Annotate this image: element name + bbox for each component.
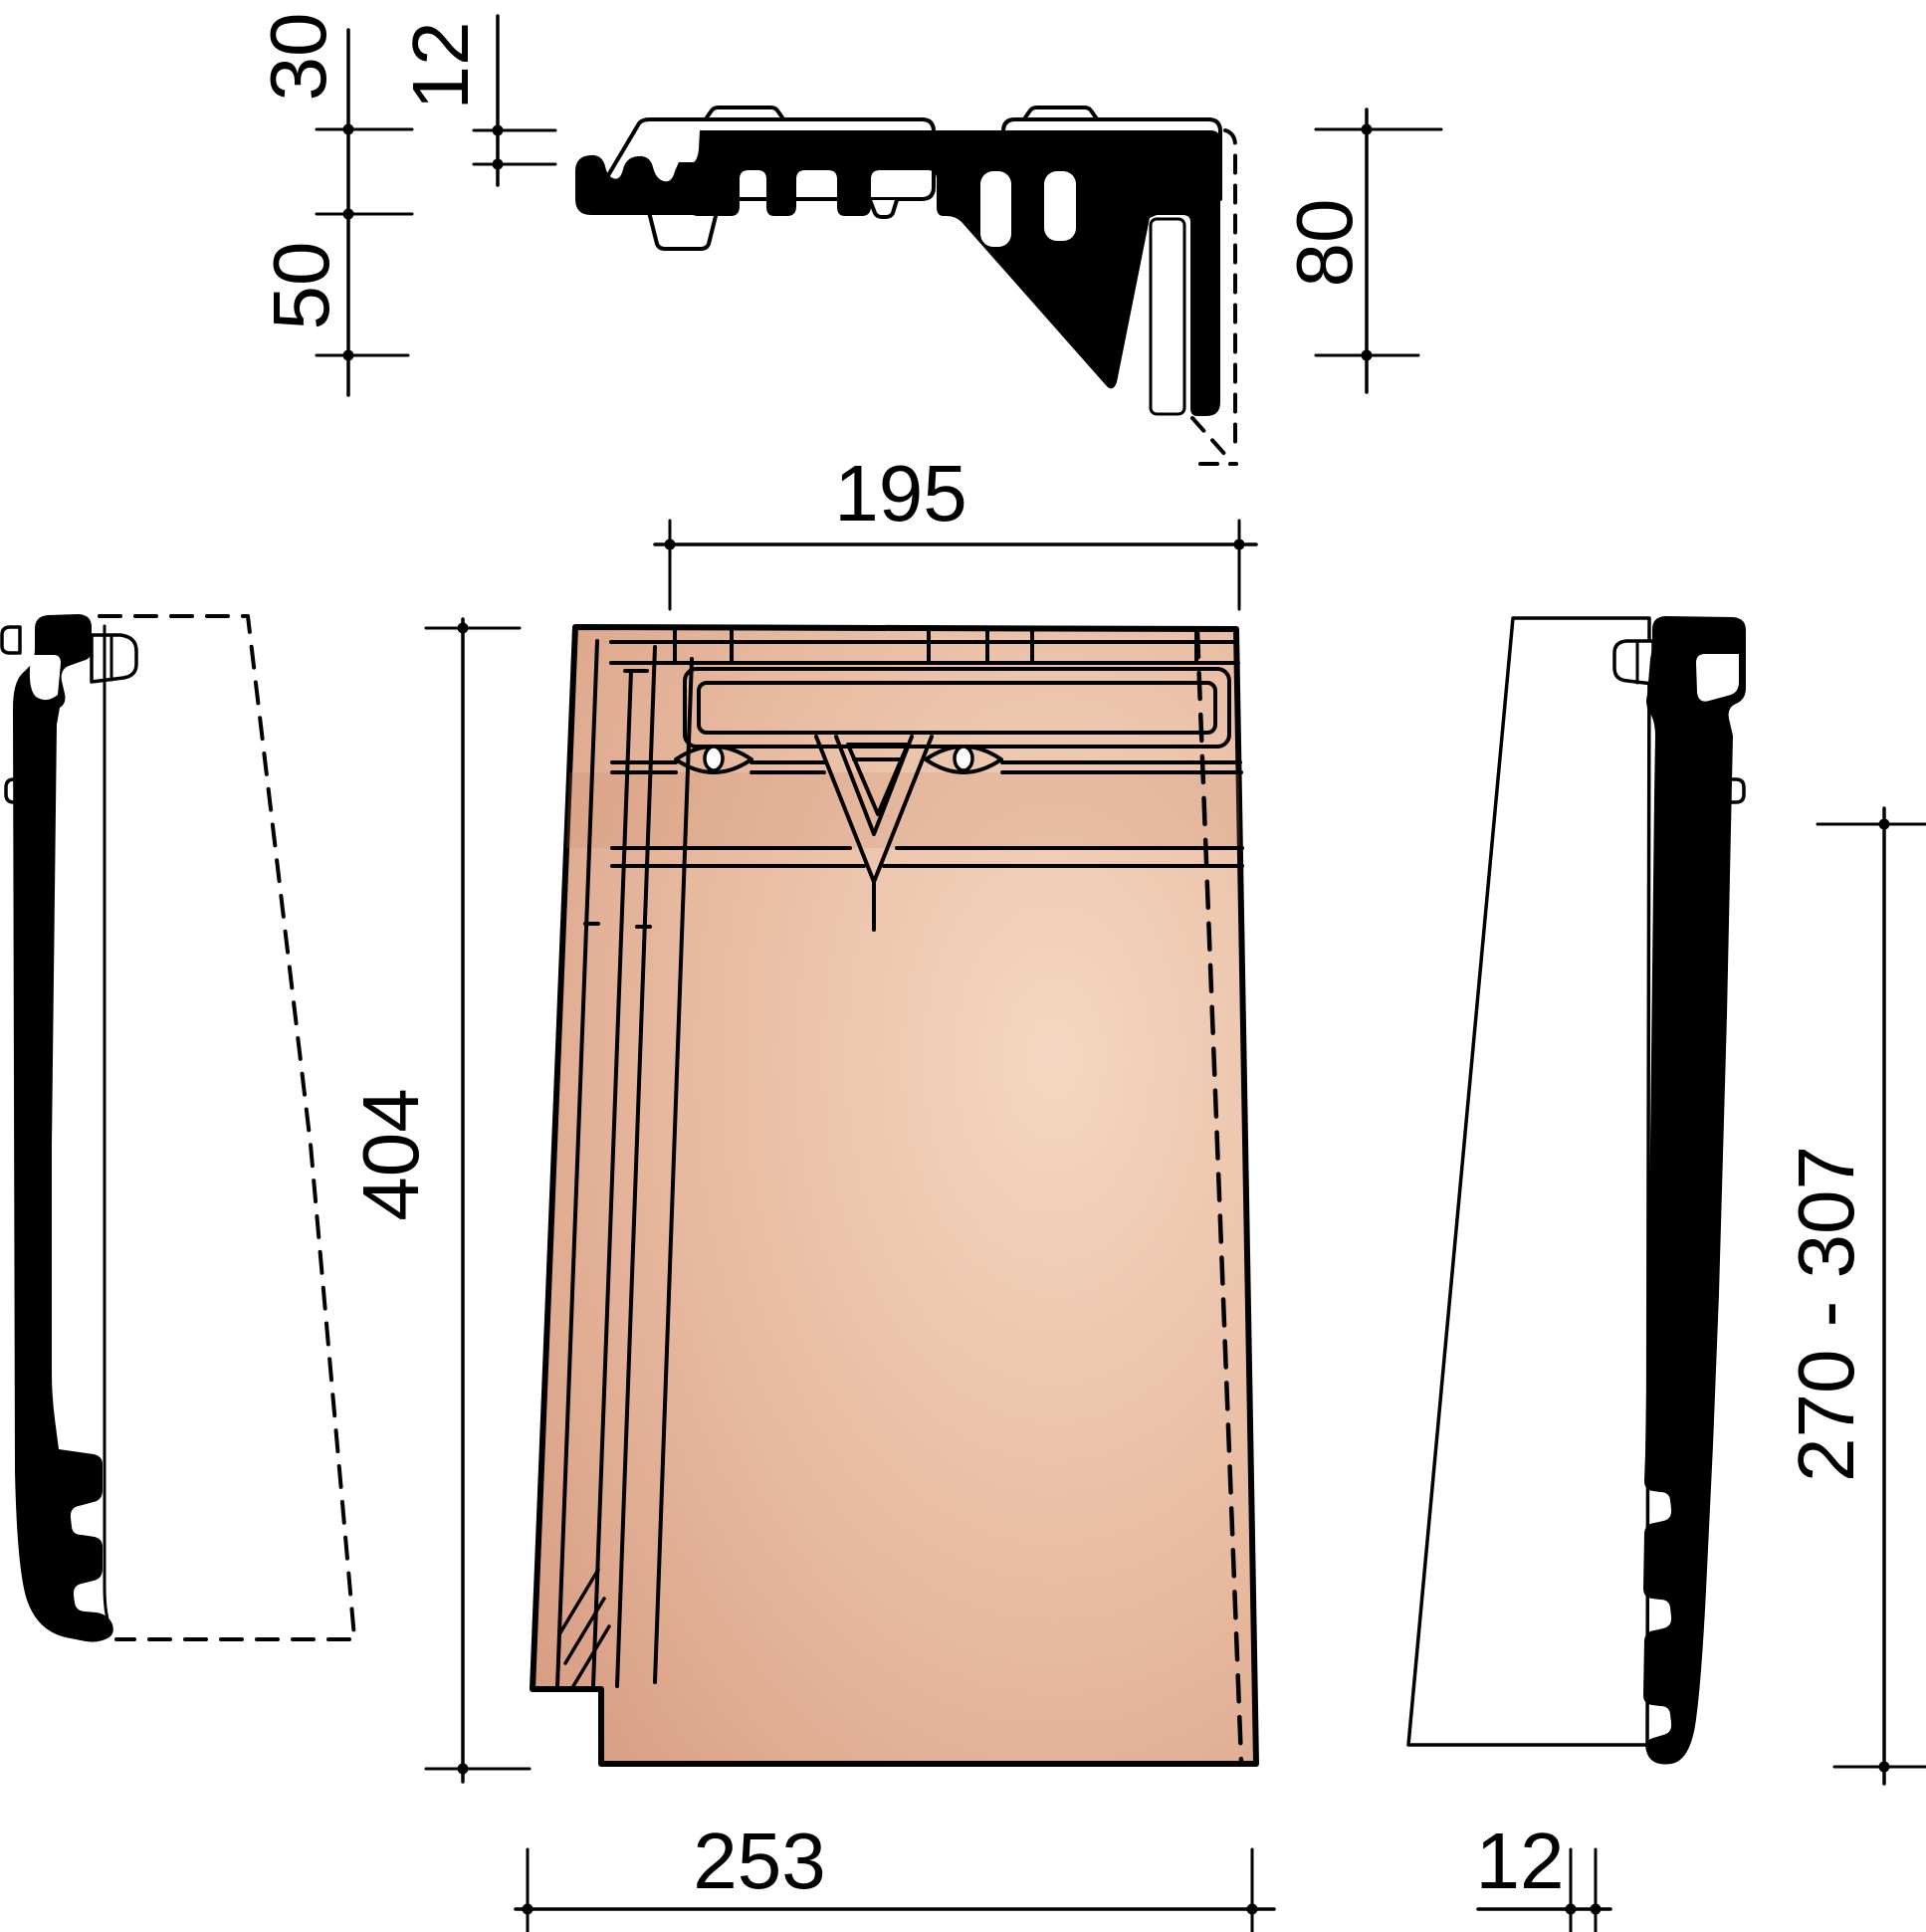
dim-dot xyxy=(1879,819,1890,830)
technical-drawing-page: 30 50 12 80 195 xyxy=(0,0,1926,1932)
dim-195: 195 xyxy=(655,449,1256,609)
dim-dot xyxy=(343,350,354,361)
plan-view xyxy=(533,627,1256,1764)
section-leg-flange-outline xyxy=(1151,219,1184,414)
dim-dot xyxy=(1234,539,1245,550)
dim-dot xyxy=(343,209,354,220)
dim-12-section: 12 xyxy=(396,16,555,185)
dim-label-50: 50 xyxy=(257,242,345,330)
left-side-tab-top-right xyxy=(92,635,136,682)
left-side-black-profile xyxy=(13,614,113,1642)
dim-404-ticks xyxy=(426,628,530,1769)
dim-dot xyxy=(1879,1762,1890,1773)
right-side-tab-left xyxy=(1614,641,1653,684)
left-side-view xyxy=(2,614,354,1642)
dim-label-195: 195 xyxy=(834,449,966,537)
dim-12-ticks xyxy=(474,130,555,164)
dim-404: 404 xyxy=(346,619,530,1782)
section-notch-hole-1 xyxy=(980,171,1011,247)
dim-dot xyxy=(343,124,354,135)
dim-dot xyxy=(523,1904,534,1915)
dim-253-ticks xyxy=(528,1849,1252,1932)
dim-253: 253 xyxy=(516,1817,1274,1932)
dim-label-12-section: 12 xyxy=(396,22,485,110)
dim-dot xyxy=(665,539,676,550)
dim-80: 80 xyxy=(1280,109,1441,392)
dim-dot xyxy=(458,623,469,634)
dim-dot xyxy=(1591,1904,1602,1915)
left-side-tab-left-1 xyxy=(2,627,20,653)
section-notch-hole-2 xyxy=(1044,171,1076,241)
dim-label-253: 253 xyxy=(693,1817,825,1905)
dim-dot xyxy=(493,125,504,136)
dim-dot xyxy=(1362,350,1373,361)
dim-label-80: 80 xyxy=(1280,199,1369,288)
dim-label-404: 404 xyxy=(346,1088,435,1220)
plan-nail-hole-left xyxy=(705,747,723,770)
right-side-black-profile xyxy=(1643,616,1746,1764)
dim-12-edge: 12 xyxy=(1476,1817,1610,1932)
roof-tile-drawing: 30 50 12 80 195 xyxy=(0,0,1926,1932)
right-side-body-outline xyxy=(1408,618,1649,1745)
dim-12-edge-ticks xyxy=(1571,1849,1596,1932)
section-small-bump-outline xyxy=(870,200,897,217)
dim-dot xyxy=(1247,1904,1258,1915)
dim-dot xyxy=(1362,124,1373,135)
dim-dot xyxy=(458,1764,469,1775)
left-side-hook-notch xyxy=(30,655,61,700)
plan-nail-hole-right xyxy=(955,747,972,770)
dim-dot xyxy=(1566,1904,1577,1915)
dim-270-307: 270 - 307 xyxy=(1782,808,1926,1784)
left-side-hidden-outline xyxy=(100,616,354,1639)
dim-label-30: 30 xyxy=(254,13,342,102)
dim-30-50: 30 50 xyxy=(254,13,412,395)
dim-label-12-edge: 12 xyxy=(1476,1817,1565,1905)
head-section-view xyxy=(575,107,1236,464)
dim-dot xyxy=(493,159,504,170)
dim-label-270-307: 270 - 307 xyxy=(1782,1146,1870,1482)
right-side-view xyxy=(1408,616,1746,1764)
left-side-inner-edge-line xyxy=(105,626,111,1630)
